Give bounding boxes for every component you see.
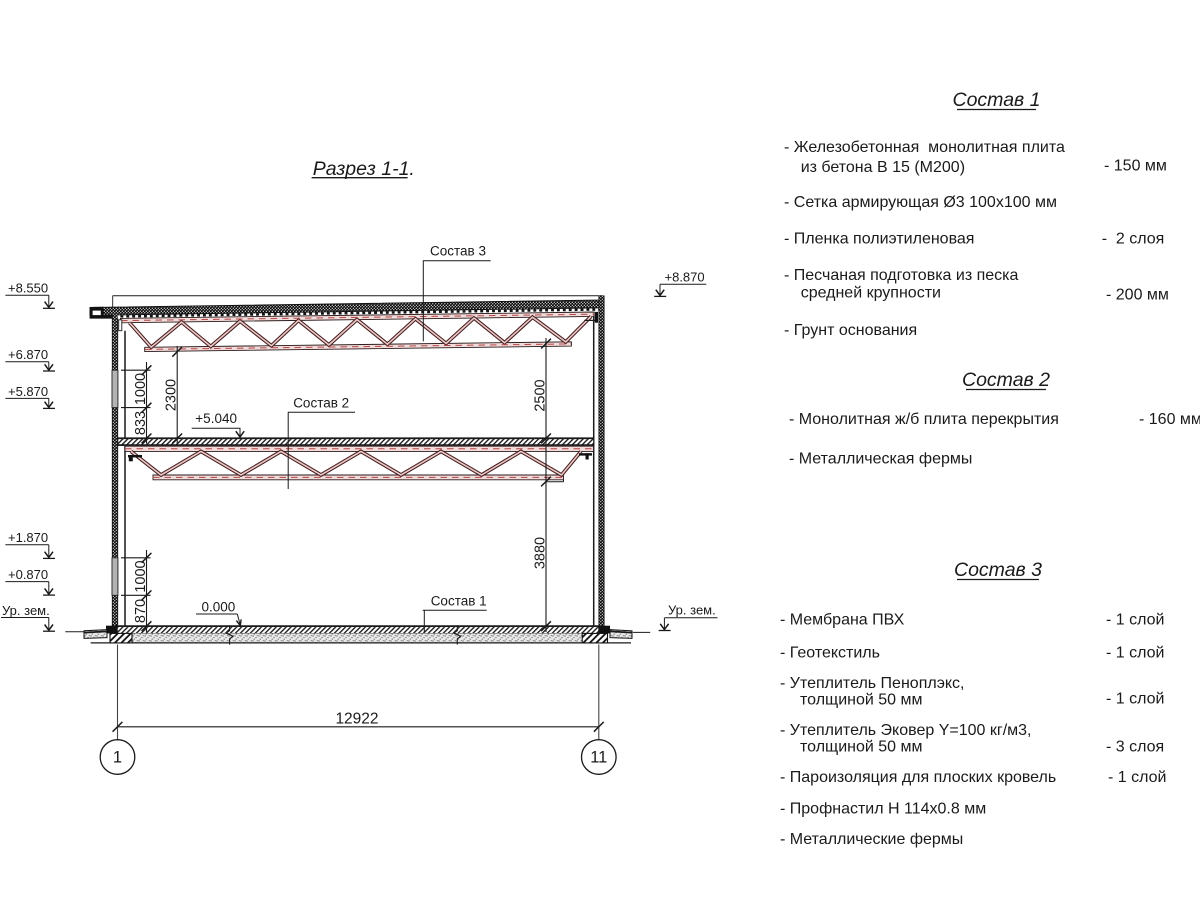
svg-text:1: 1 (113, 749, 122, 767)
svg-text:Состав 2: Состав 2 (293, 395, 349, 410)
svg-text:2500: 2500 (532, 379, 548, 411)
svg-text:0.000: 0.000 (202, 600, 236, 615)
svg-text:Ур. зем.: Ур. зем. (668, 602, 716, 617)
svg-text:- Мембрана ПВХ: - Мембрана ПВХ (780, 612, 905, 629)
svg-text:- Песчаная подготовка из песка: - Песчаная подготовка из песка (784, 267, 1019, 284)
svg-text:- 150 мм: - 150 мм (1104, 158, 1167, 175)
svg-text:- 1 слой: - 1 слой (1106, 612, 1164, 629)
svg-text:из бетона В 15 (М200): из бетона В 15 (М200) (801, 159, 965, 176)
svg-text:- Пароизоляция для плоских кро: - Пароизоляция для плоских кровель (780, 769, 1056, 786)
svg-text:11: 11 (590, 749, 607, 767)
svg-text:- Утеплитель Пеноплэкс,: - Утеплитель Пеноплэкс, (780, 675, 964, 692)
svg-text:+8.550: +8.550 (8, 281, 48, 296)
svg-text:- 1 слой: - 1 слой (1106, 691, 1164, 708)
svg-text:Состав 3: Состав 3 (954, 559, 1042, 581)
svg-text:Состав 1: Состав 1 (431, 593, 487, 608)
svg-text:+1.870: +1.870 (8, 530, 48, 545)
svg-text:толщиной 50 мм: толщиной 50 мм (800, 692, 923, 709)
svg-text:Состав 3: Состав 3 (430, 243, 486, 258)
svg-text:- Геотекстиль: - Геотекстиль (780, 645, 880, 662)
svg-text:Разрез 1-1.: Разрез 1-1. (313, 158, 415, 180)
svg-text:- 1 слой: - 1 слой (1106, 645, 1164, 662)
svg-text:- 3 слоя: - 3 слоя (1106, 739, 1164, 756)
svg-text:870: 870 (133, 599, 149, 623)
svg-text:+0.870: +0.870 (8, 567, 48, 582)
svg-text:- Металлическая фермы: - Металлическая фермы (789, 451, 972, 468)
svg-text:- Пленка полиэтиленовая: - Пленка полиэтиленовая (784, 230, 974, 247)
svg-text:- Металлические фермы: - Металлические фермы (780, 831, 963, 848)
svg-text:Ур. зем.: Ур. зем. (2, 603, 50, 618)
svg-text:833: 833 (133, 411, 149, 435)
svg-text:- 1 слой: - 1 слой (1108, 769, 1166, 786)
svg-text:- Монолитная ж/б плита перекры: - Монолитная ж/б плита перекрытия (789, 411, 1059, 428)
svg-text:- Грунт основания: - Грунт основания (784, 322, 917, 339)
svg-text:Состав 1: Состав 1 (953, 89, 1041, 111)
svg-text:- 2 слоя: - 2 слоя (1102, 230, 1165, 247)
svg-text:- 160 мм: - 160 мм (1139, 411, 1200, 428)
svg-text:1000: 1000 (133, 373, 149, 405)
svg-text:- Сетка армирующая Ø3 100х100: - Сетка армирующая Ø3 100х100 мм (784, 194, 1057, 211)
svg-text:+5.040: +5.040 (195, 411, 237, 426)
svg-text:2300: 2300 (164, 379, 180, 411)
svg-text:1000: 1000 (133, 560, 149, 592)
svg-text:- 200 мм: - 200 мм (1106, 286, 1169, 303)
svg-text:- Профнастил Н 114х0.8 мм: - Профнастил Н 114х0.8 мм (780, 801, 986, 818)
svg-text:- Железобетонная монолитная п: - Железобетонная монолитная плита (784, 139, 1065, 156)
svg-text:3880: 3880 (532, 537, 548, 569)
svg-text:+6.870: +6.870 (8, 347, 48, 362)
svg-text:- Утеплитель Эковер Y=100 кг/м: - Утеплитель Эковер Y=100 кг/м3, (780, 722, 1031, 739)
svg-text:+5.870: +5.870 (8, 384, 48, 399)
svg-text:Состав 2: Состав 2 (962, 369, 1050, 391)
svg-text:+8.870: +8.870 (665, 270, 705, 285)
svg-text:средней крупности: средней крупности (801, 284, 941, 301)
svg-text:12922: 12922 (335, 711, 378, 728)
svg-text:толщиной 50 мм: толщиной 50 мм (800, 739, 923, 756)
